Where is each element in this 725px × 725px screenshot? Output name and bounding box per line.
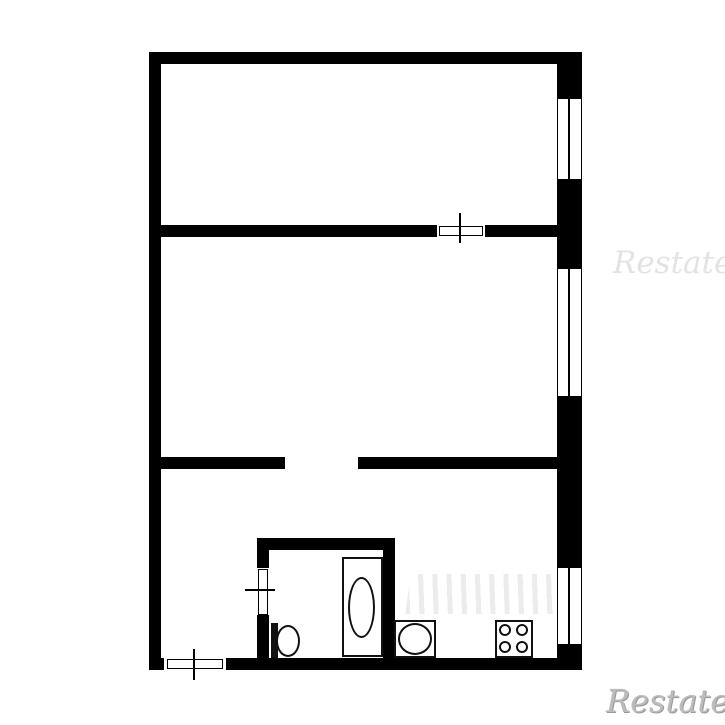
wall-divider-upper: [161, 225, 557, 237]
window-kitchen: [557, 567, 582, 645]
stove-burner-2: [516, 624, 528, 636]
window-top-room: [557, 98, 582, 180]
wall-left: [149, 52, 161, 670]
door-entrance-tick: [193, 649, 195, 680]
window-middle-room-frame-line: [568, 268, 570, 397]
door-bathroom-leaf: [258, 569, 268, 615]
toilet-bowl: [276, 625, 300, 657]
kitchen-sink-basin: [398, 623, 432, 655]
wall-divider-lower-right: [358, 457, 557, 469]
window-kitchen-frame-line: [568, 567, 570, 645]
watermark-restate-bottom: Restate: [606, 682, 725, 720]
floor-plan: Restate Restate: [0, 0, 725, 725]
window-middle-room: [557, 268, 582, 397]
stove-burner-1: [499, 624, 511, 636]
faint-watermark-glyphs: [405, 574, 563, 614]
wall-bathroom-top: [257, 538, 395, 550]
stove-burner-3: [499, 641, 511, 653]
door-bathroom-tick: [245, 589, 275, 591]
door-entrance-leaf: [167, 659, 223, 669]
window-top-room-frame-line: [568, 98, 570, 180]
wall-top: [149, 52, 582, 64]
bathtub-basin: [348, 577, 375, 638]
stove-burner-4: [516, 641, 528, 653]
wall-divider-lower-left: [161, 457, 285, 469]
door-upper-room-tick: [459, 213, 461, 243]
door-upper-room-leaf: [439, 226, 483, 236]
watermark-restate-right: Restate: [613, 245, 725, 281]
